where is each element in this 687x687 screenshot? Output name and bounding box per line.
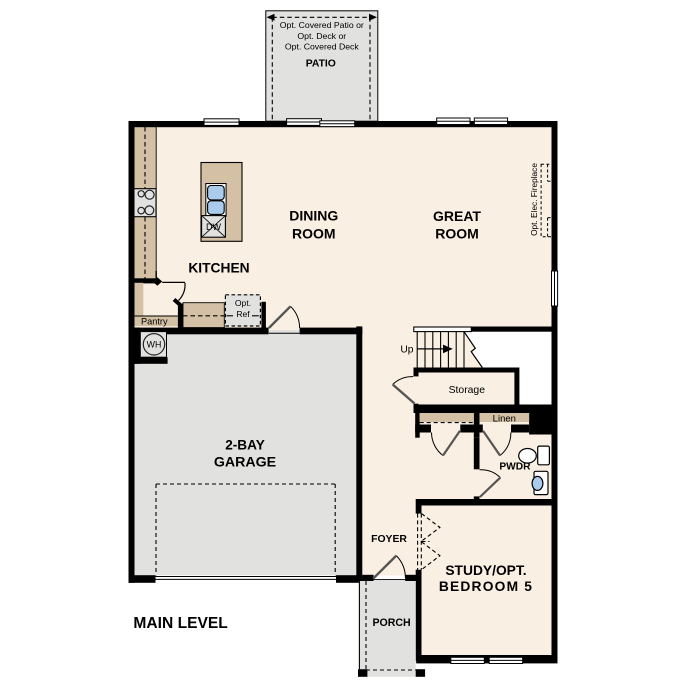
svg-text:Opt. Covered Deck: Opt. Covered Deck (285, 41, 360, 51)
svg-text:Ref: Ref (236, 309, 250, 319)
svg-text:FOYER: FOYER (371, 534, 407, 545)
svg-text:PORCH: PORCH (372, 617, 410, 629)
svg-text:GARAGE: GARAGE (214, 455, 276, 471)
svg-text:PATIO: PATIO (306, 58, 336, 69)
svg-text:Opt. Elec. Fireplace: Opt. Elec. Fireplace (529, 163, 539, 236)
svg-text:GREAT: GREAT (433, 208, 481, 224)
svg-text:Storage: Storage (449, 385, 486, 396)
svg-text:STUDY/OPT.: STUDY/OPT. (445, 563, 526, 578)
svg-text:ROOM: ROOM (292, 226, 336, 242)
svg-text:ROOM: ROOM (435, 225, 479, 241)
svg-text:Opt.: Opt. (235, 298, 251, 308)
svg-text:DINING: DINING (289, 208, 338, 224)
svg-text:2-BAY: 2-BAY (225, 438, 265, 453)
svg-text:BEDROOM 5: BEDROOM 5 (439, 579, 533, 594)
svg-text:PWDR: PWDR (499, 462, 531, 473)
svg-text:Linen: Linen (493, 413, 516, 424)
svg-text:Opt. Covered Patio or: Opt. Covered Patio or (280, 20, 364, 30)
svg-text:WH: WH (147, 340, 162, 350)
svg-text:Pantry: Pantry (141, 317, 168, 327)
svg-text:MAIN LEVEL: MAIN LEVEL (133, 615, 228, 632)
svg-text:Opt. Deck or: Opt. Deck or (297, 31, 346, 41)
svg-text:Up: Up (400, 345, 413, 356)
svg-text:DW: DW (206, 222, 221, 232)
svg-text:KITCHEN: KITCHEN (188, 261, 249, 276)
